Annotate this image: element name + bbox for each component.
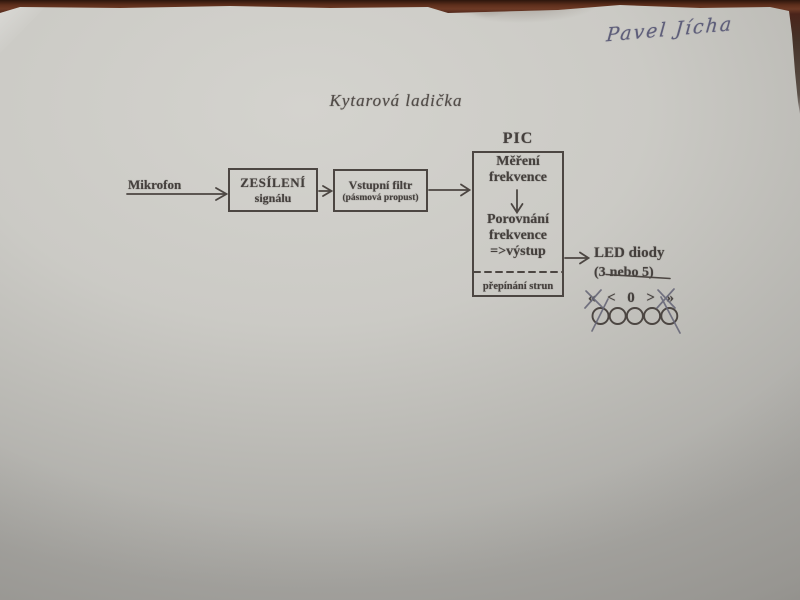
led-symbol-right-double-chevron: » (667, 289, 675, 307)
pic-compare-line1: Porovnání (487, 212, 549, 228)
pic-box: Měření frekvence Porovnání frekvence =>v… (472, 151, 564, 297)
pic-output-line: =>výstup (490, 244, 546, 260)
arrow-right-icon (565, 253, 589, 264)
led-symbol-zero: 0 (627, 289, 635, 307)
microphone-label: Mikrofon (128, 177, 181, 193)
handwritten-name: Pavel Jícha (605, 8, 796, 47)
led-symbol-right-chevron: > (646, 289, 655, 307)
arrow-right-icon (319, 186, 332, 196)
diagram-title: Kytarová ladička (296, 91, 496, 111)
corner-fold-highlight (0, 6, 46, 54)
amplifier-box: ZESÍLENÍ signálu (228, 168, 318, 212)
filter-box-line2: (pásmová propust) (342, 192, 418, 204)
led-circle (627, 308, 643, 324)
led-symbols-row: « < 0 > » (588, 289, 674, 307)
diagram-overlay-graphics (0, 0, 800, 600)
led-circle (661, 308, 677, 324)
led-circle (593, 308, 609, 324)
led-circle (644, 308, 660, 324)
led-circle (610, 308, 626, 324)
pic-measure-line2: frekvence (489, 170, 547, 186)
filter-box-line1: Vstupní filtr (349, 178, 413, 192)
filter-box: Vstupní filtr (pásmová propust) (333, 169, 428, 212)
pic-measure-line1: Měření (496, 154, 540, 170)
led-symbol-left-double-chevron: « (588, 289, 596, 307)
top-edge-shadow-dark (452, 0, 522, 24)
pic-compare-line2: frekvence (489, 228, 547, 244)
paper-sheet: Pavel Jícha Kytarová ladička Mikrofon ZE… (0, 0, 800, 600)
pic-bottom-label: přepínání strun (474, 280, 562, 293)
led-circles (593, 308, 678, 324)
top-edge-shadow (418, 0, 623, 32)
led-symbol-left-chevron: < (607, 289, 616, 307)
led-count-prefix: (3 (594, 265, 606, 281)
pic-label: PIC (472, 130, 564, 148)
photo-of-paper: Pavel Jícha Kytarová ladička Mikrofon ZE… (0, 0, 800, 600)
amplifier-box-line2: signálu (255, 191, 292, 206)
amplifier-box-line1: ZESÍLENÍ (240, 175, 305, 191)
led-count: (3 nebo 5) (594, 265, 654, 281)
arrow-right-icon (429, 185, 470, 196)
led-title: LED diody (594, 245, 664, 262)
led-count-struck: nebo 5) (610, 265, 654, 281)
